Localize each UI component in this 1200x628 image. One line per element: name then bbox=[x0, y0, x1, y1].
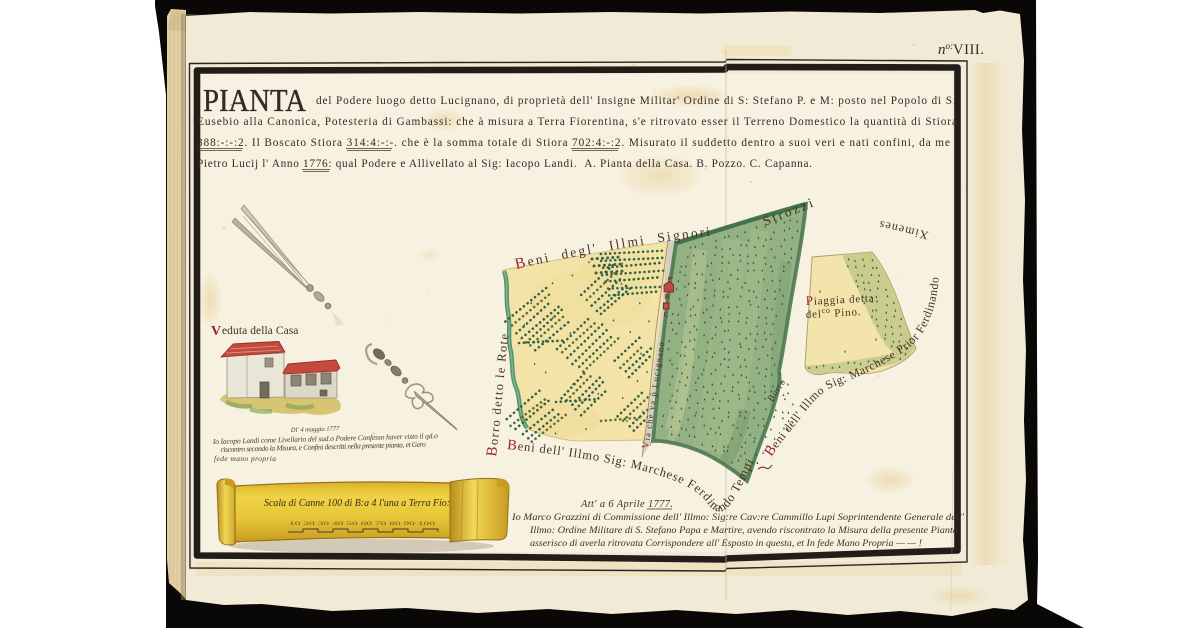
svg-text:no:VIII.: no:VIII. bbox=[938, 41, 985, 58]
svg-text:Pietro Lucij l' Anno 1776: qua: Pietro Lucij l' Anno 1776: qual Podere e… bbox=[197, 158, 812, 170]
svg-text:Att' a 6 Aprile 1777.: Att' a 6 Aprile 1777. bbox=[580, 499, 673, 510]
svg-text:eduta della Casa: eduta della Casa bbox=[222, 325, 299, 337]
svg-text:asserisco di averla ritrovata: asserisco di averla ritrovata Corrispond… bbox=[530, 538, 922, 549]
svg-text:Illmo: Ordine Militare di S. S: Illmo: Ordine Militare di S. Stefano Pap… bbox=[529, 525, 958, 536]
svg-text:C: C bbox=[664, 311, 669, 319]
svg-text:fede mano propria: fede mano propria bbox=[214, 454, 276, 463]
svg-text:Scala di Canne 100 di B:a 4 l': Scala di Canne 100 di B:a 4 l'una a Terr… bbox=[264, 498, 450, 509]
svg-text:V: V bbox=[211, 324, 221, 339]
svg-text:del Podere luogo detto Lucigna: del Podere luogo detto Lucignano, di pro… bbox=[316, 95, 956, 107]
svg-text:Io Marco Grazzini di Commissio: Io Marco Grazzini di Commissione dell' I… bbox=[511, 513, 965, 523]
svg-text:Eusebio alla Canonica, Poteste: Eusebio alla Canonica, Potesteria di Gam… bbox=[197, 116, 957, 128]
svg-text:B: B bbox=[665, 293, 670, 301]
svg-text:PIANTA: PIANTA bbox=[203, 82, 306, 118]
svg-text:388:-:-:2. Il Boscato Stiora 3: 388:-:-:2. Il Boscato Stiora 314:4:-:-. … bbox=[197, 137, 950, 149]
svg-text:10 20 30 40 50 60 70 80: 10 20 30 40 50 60 70 80 90 100 bbox=[289, 521, 436, 527]
